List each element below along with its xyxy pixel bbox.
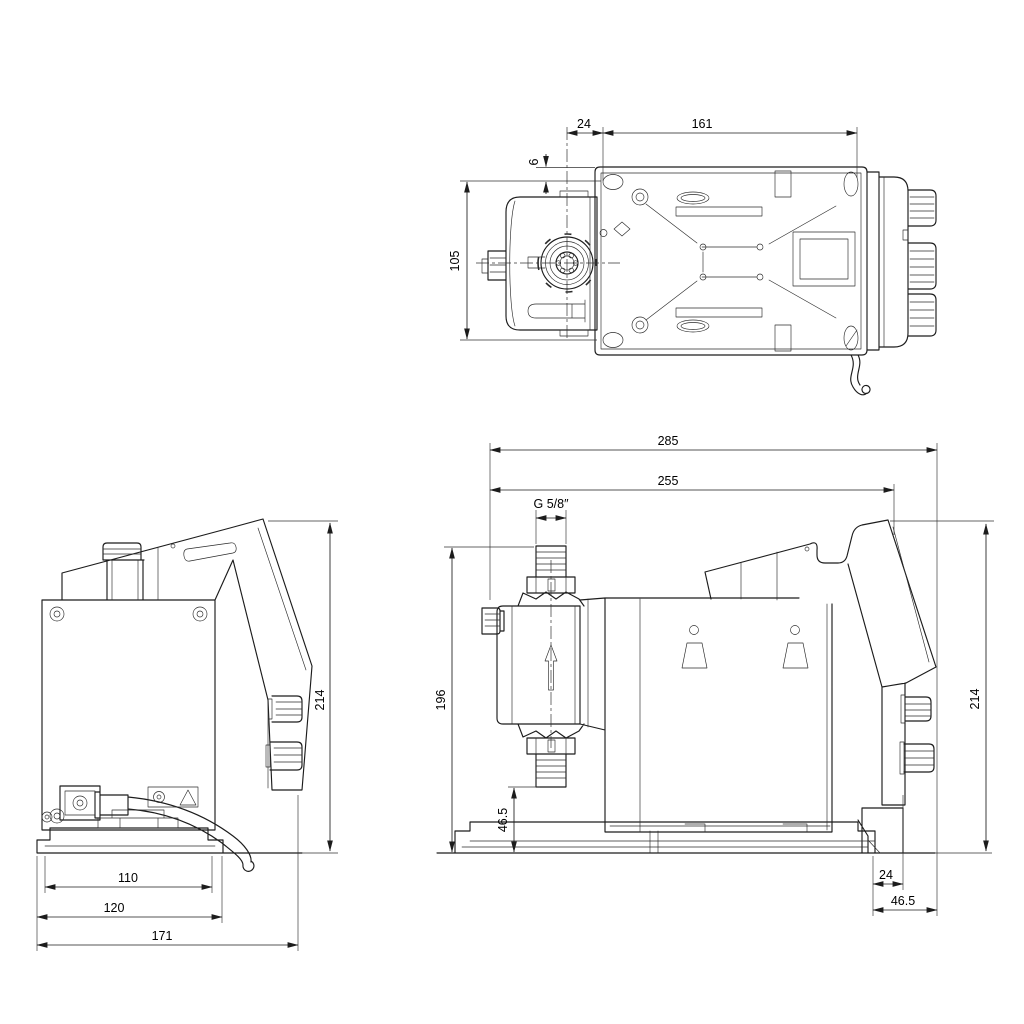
front-view-extension-lines bbox=[37, 521, 338, 951]
dim-label-6: 6 bbox=[527, 158, 541, 165]
dim-label-105: 105 bbox=[448, 251, 462, 272]
side-view-dimensions: 285 255 G 5/8″ 196 46.5 214 24 46.5 bbox=[434, 434, 994, 916]
dim-label-214-front: 214 bbox=[313, 690, 327, 711]
dim-label-196: 196 bbox=[434, 690, 448, 711]
dim-label-46-5-vert: 46.5 bbox=[496, 808, 510, 832]
dim-label-285: 285 bbox=[658, 434, 679, 448]
top-view-extension-lines bbox=[460, 127, 857, 340]
dim-label-110: 110 bbox=[118, 871, 138, 885]
top-view: 24 161 6 105 bbox=[448, 117, 936, 395]
dim-label-120: 120 bbox=[104, 901, 125, 915]
dim-label-214-side: 214 bbox=[968, 689, 982, 710]
dim-label-161: 161 bbox=[692, 117, 713, 131]
dim-label-46-5-horiz: 46.5 bbox=[891, 894, 915, 908]
front-view-dimensions: 214 110 120 171 bbox=[37, 521, 338, 951]
dim-label-thread: G 5/8″ bbox=[534, 497, 570, 511]
dim-label-171: 171 bbox=[152, 929, 173, 943]
dim-label-255: 255 bbox=[658, 474, 679, 488]
front-view: 214 110 120 171 bbox=[37, 519, 338, 951]
side-view: 285 255 G 5/8″ 196 46.5 214 24 46.5 bbox=[434, 434, 994, 916]
top-view-dimensions: 24 161 6 105 bbox=[448, 117, 857, 340]
top-view-centerlines bbox=[476, 127, 620, 338]
dim-label-24-side: 24 bbox=[879, 868, 893, 882]
top-view-detail-lines bbox=[482, 171, 934, 351]
drawing-page: 24 161 6 105 214 110 120 171 bbox=[0, 0, 1024, 1024]
side-view-detail-lines bbox=[462, 527, 934, 853]
pump-dimensional-drawing: 24 161 6 105 214 110 120 171 bbox=[0, 0, 1024, 1024]
dim-label-24: 24 bbox=[577, 117, 591, 131]
front-view-main-outlines bbox=[37, 519, 312, 871]
front-view-detail-lines bbox=[42, 528, 306, 846]
